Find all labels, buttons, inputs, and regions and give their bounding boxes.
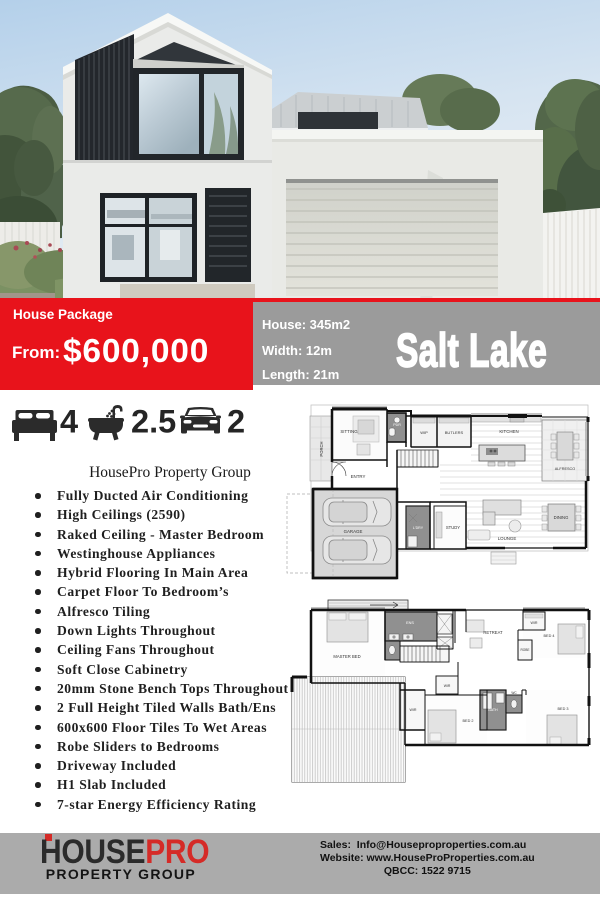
svg-text:MASTER BED: MASTER BED bbox=[333, 654, 360, 659]
svg-text:ENTRY: ENTRY bbox=[351, 474, 366, 479]
svg-text:RETREAT: RETREAT bbox=[483, 630, 503, 635]
svg-text:ROBE: ROBE bbox=[520, 648, 529, 652]
svg-text:BED 4: BED 4 bbox=[544, 634, 555, 638]
svg-text:SITTING: SITTING bbox=[340, 429, 358, 434]
svg-text:KITCHEN: KITCHEN bbox=[499, 429, 518, 434]
svg-text:ALFRESCO: ALFRESCO bbox=[555, 467, 576, 471]
svg-text:PDR: PDR bbox=[393, 423, 401, 427]
svg-text:ENS: ENS bbox=[406, 621, 414, 625]
svg-text:GARAGE: GARAGE bbox=[344, 529, 363, 534]
svg-text:DINING: DINING bbox=[554, 515, 569, 520]
svg-text:WIP: WIP bbox=[420, 430, 428, 435]
svg-text:WIR: WIR bbox=[444, 684, 451, 688]
svg-text:WIR: WIR bbox=[410, 708, 417, 712]
svg-text:BED 3: BED 3 bbox=[558, 707, 569, 711]
svg-text:BED 2: BED 2 bbox=[463, 719, 474, 723]
svg-text:WIR: WIR bbox=[531, 621, 538, 625]
svg-text:STUDY: STUDY bbox=[446, 525, 460, 530]
svg-text:BATH: BATH bbox=[488, 708, 498, 712]
svg-text:LOUNGE: LOUNGE bbox=[498, 536, 517, 541]
svg-text:BUTLERS: BUTLERS bbox=[445, 430, 464, 435]
svg-text:WC: WC bbox=[511, 691, 517, 695]
svg-text:L'DRY: L'DRY bbox=[413, 526, 424, 530]
svg-text:PORCH: PORCH bbox=[319, 441, 324, 456]
